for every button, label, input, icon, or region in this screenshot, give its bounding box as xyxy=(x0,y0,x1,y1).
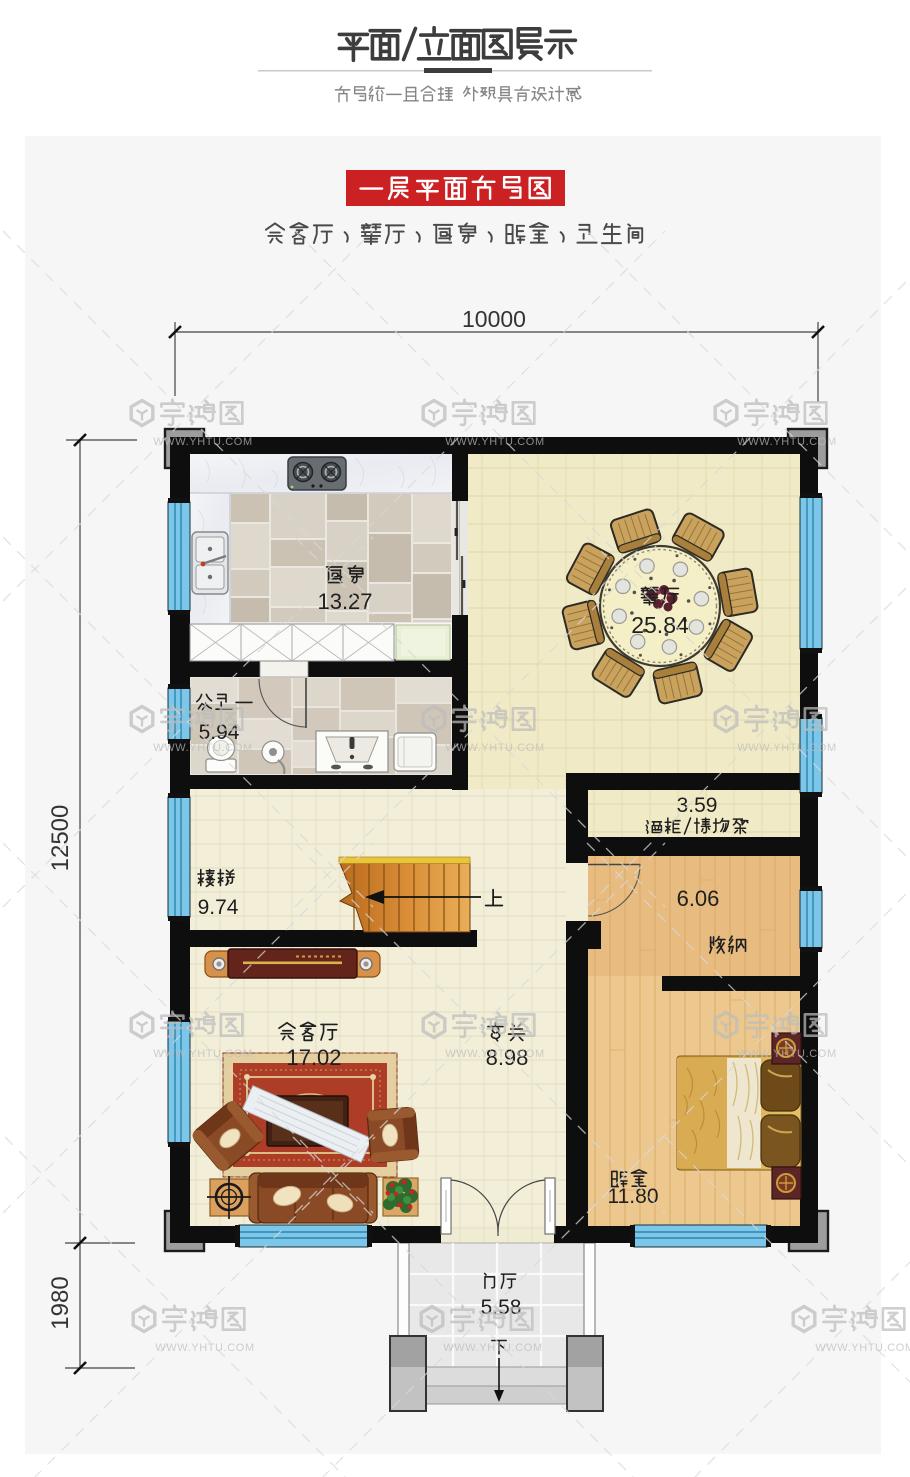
svg-text:WWW.YHTU.COM: WWW.YHTU.COM xyxy=(153,436,252,448)
svg-text:17.02: 17.02 xyxy=(286,1045,341,1070)
svg-text:12500: 12500 xyxy=(47,805,74,872)
svg-text:WWW.YHTU.COM: WWW.YHTU.COM xyxy=(153,1048,252,1060)
svg-text:WWW.YHTU.COM: WWW.YHTU.COM xyxy=(445,742,544,754)
svg-text:WWW.YHTU.COM: WWW.YHTU.COM xyxy=(815,1342,910,1354)
svg-text:WWW.YHTU.COM: WWW.YHTU.COM xyxy=(443,1342,542,1354)
svg-text:6.06: 6.06 xyxy=(677,886,720,911)
svg-text:WWW.YHTU.COM: WWW.YHTU.COM xyxy=(737,1048,836,1060)
svg-text:11.80: 11.80 xyxy=(608,1185,659,1208)
svg-text:WWW.YHTU.COM: WWW.YHTU.COM xyxy=(445,1048,544,1060)
svg-text:1980: 1980 xyxy=(47,1276,74,1329)
svg-text:3.59: 3.59 xyxy=(677,794,718,817)
svg-text:WWW.YHTU.COM: WWW.YHTU.COM xyxy=(153,742,252,754)
svg-text:WWW.YHTU.COM: WWW.YHTU.COM xyxy=(737,742,836,754)
svg-text:9.74: 9.74 xyxy=(198,896,239,919)
svg-text:WWW.YHTU.COM: WWW.YHTU.COM xyxy=(445,436,544,448)
svg-text:10000: 10000 xyxy=(462,306,526,332)
svg-text:WWW.YHTU.COM: WWW.YHTU.COM xyxy=(155,1342,254,1354)
svg-text:WWW.YHTU.COM: WWW.YHTU.COM xyxy=(737,436,836,448)
svg-text:25.84: 25.84 xyxy=(631,612,689,638)
svg-text:13.27: 13.27 xyxy=(317,589,372,614)
